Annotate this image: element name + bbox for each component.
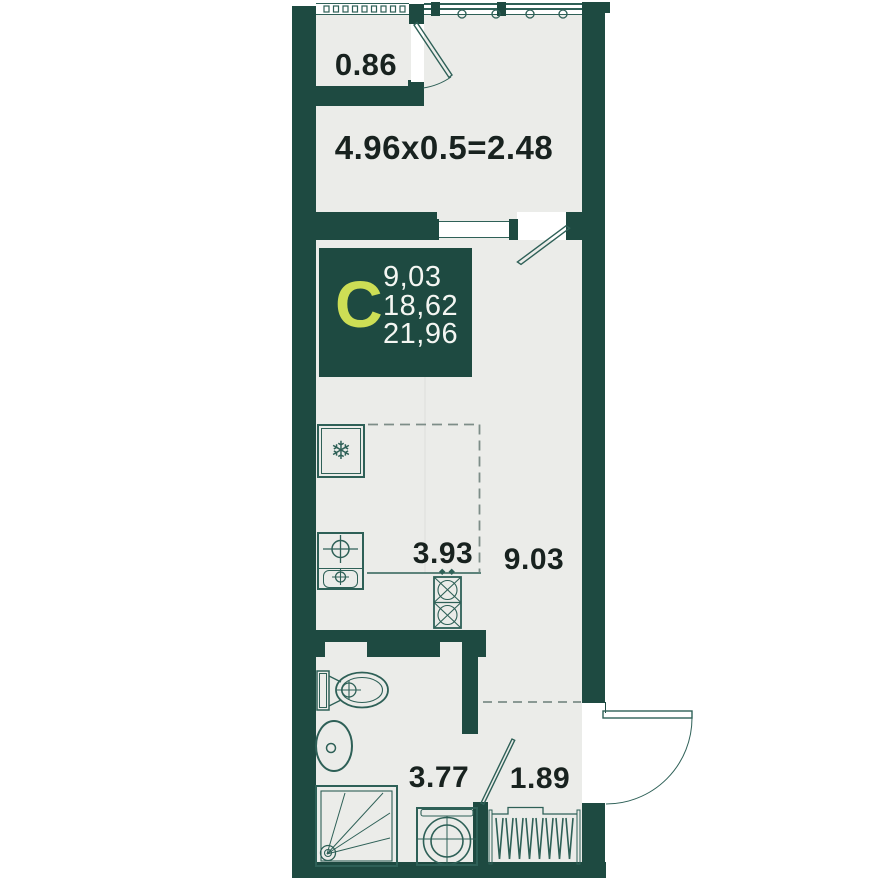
bathroom-area-label: 3.77: [389, 761, 489, 795]
wall-left: [292, 6, 316, 878]
wall-bathroom-top: [315, 630, 486, 642]
wall-balcony-room: [292, 212, 437, 240]
window-mullion: [431, 2, 440, 16]
snowflake-icon: ❄: [321, 428, 361, 474]
balcony-doorway: [517, 212, 566, 240]
interior-window-post: [509, 219, 518, 240]
balcony-area-label: 4.96x0.5=2.48: [324, 129, 564, 167]
wall-bathroom-stub: [473, 802, 488, 864]
living-room-area-label: 9.03: [484, 543, 584, 577]
window-mullion: [497, 2, 506, 16]
total-area-value: 21,96: [383, 320, 458, 349]
apartment-type-letter: С: [335, 274, 383, 334]
hallway-area-label: 1.89: [490, 762, 590, 796]
interior-window: [435, 221, 514, 238]
wall-closet-bottom: [292, 86, 424, 106]
stove-top: [319, 534, 362, 569]
wall-bathroom-top-c: [462, 642, 486, 657]
kitchen-sink: [323, 570, 358, 588]
wall-closet-pier: [409, 4, 424, 24]
kitchen-sink-stove: [317, 532, 364, 590]
wall-right-cap: [582, 2, 610, 13]
closet-area-label: 0.86: [316, 47, 416, 83]
wall-bathroom-top-b: [367, 642, 440, 657]
entrance-door: [603, 711, 692, 804]
wall-balcony-door-jamb: [566, 212, 582, 240]
wall-right-lower: [582, 803, 605, 878]
apartment-area-value: 18,62: [383, 292, 458, 321]
wall-bathroom-right: [462, 657, 478, 734]
kitchen-zone-area-label: 3.93: [393, 537, 493, 571]
floor-plan: С 9,03 18,62 21,96 ❄ 0.86 4.96x0.5=2.48 …: [0, 0, 880, 880]
apartment-areas: 9,03 18,62 21,96: [383, 263, 458, 349]
apartment-info-badge: С 9,03 18,62 21,96: [319, 248, 472, 377]
living-area-value: 9,03: [383, 263, 458, 292]
wall-right: [582, 2, 605, 703]
wall-bottom: [292, 862, 606, 878]
interior-window-post: [430, 219, 439, 240]
closet-glazing-band: [316, 3, 409, 15]
wall-bathroom-top-a: [314, 642, 325, 657]
fridge: ❄: [317, 424, 365, 478]
